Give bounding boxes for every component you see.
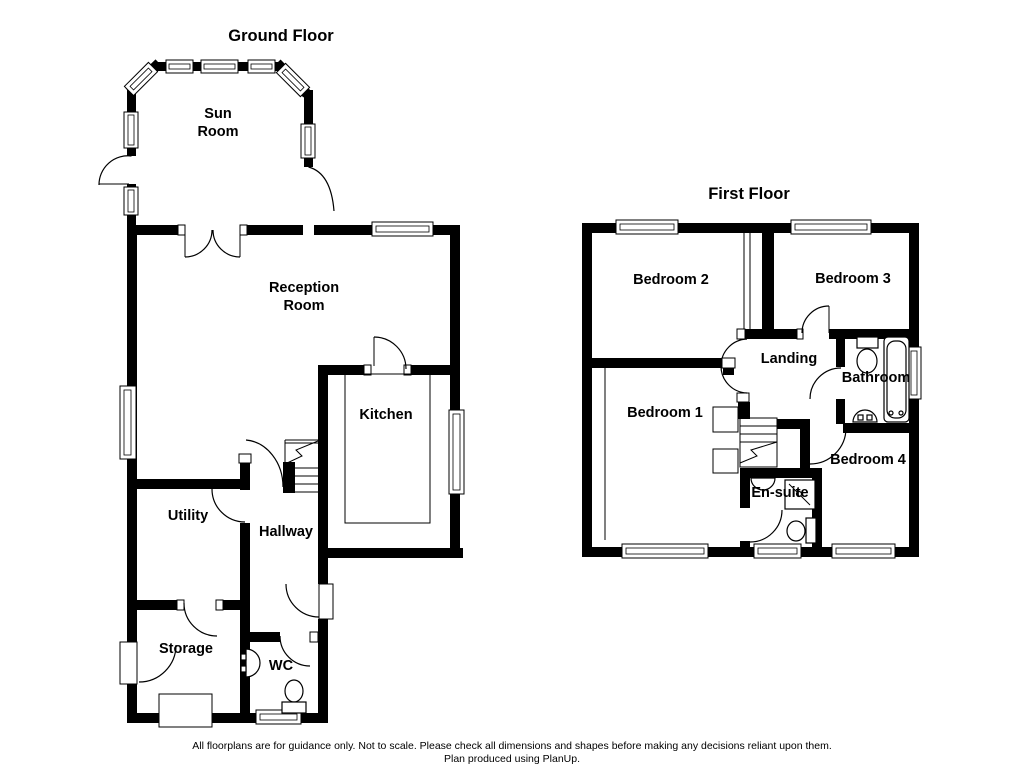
room-label-bedroom1: Bedroom 1 xyxy=(627,405,703,421)
room-label-bedroom3: Bedroom 3 xyxy=(815,271,891,287)
window xyxy=(791,220,871,234)
footer-credit: Plan produced using PlanUp. xyxy=(444,753,580,765)
window xyxy=(166,60,193,73)
window xyxy=(372,222,433,236)
sink-fixture xyxy=(853,410,877,422)
window xyxy=(248,60,275,73)
room-label-bathroom: Bathroom xyxy=(842,370,910,386)
room-label-reception-1: Reception xyxy=(269,280,339,296)
window xyxy=(124,187,138,215)
room-label-wc: WC xyxy=(269,658,294,674)
window xyxy=(449,410,464,494)
floorplan-canvas: Ground Floor Sun Room Reception Room Kit… xyxy=(0,0,1024,768)
toilet-fixture xyxy=(787,518,816,543)
window xyxy=(201,60,238,73)
room-label-bedroom4: Bedroom 4 xyxy=(830,452,906,468)
ground-door-arcs xyxy=(120,229,406,684)
room-label-hallway: Hallway xyxy=(259,524,313,540)
window xyxy=(301,124,315,158)
toilet-fixture xyxy=(857,337,878,373)
window xyxy=(124,62,157,95)
room-label-utility: Utility xyxy=(168,508,208,524)
footer-disclaimer: All floorplans are for guidance only. No… xyxy=(192,740,832,752)
window xyxy=(622,544,708,558)
front-door xyxy=(286,584,333,619)
floor-title-first: First Floor xyxy=(708,185,790,203)
room-label-reception-2: Room xyxy=(283,298,324,314)
room-label-storage: Storage xyxy=(159,641,213,657)
floorplan-page: Ground Floor Sun Room Reception Room Kit… xyxy=(0,0,1024,768)
wardrobe-furniture xyxy=(713,407,738,473)
window xyxy=(120,386,136,459)
kitchen-counter xyxy=(345,374,430,523)
toilet-fixture xyxy=(282,680,306,713)
room-label-ensuite: En-suite xyxy=(751,485,808,501)
porch-step xyxy=(159,694,212,727)
stairs-first xyxy=(740,418,777,467)
room-label-sun-room-1: Sun xyxy=(204,106,231,122)
ground-floor-plan: Ground Floor Sun Room Reception Room Kit… xyxy=(99,27,464,727)
first-floor-plan: First Floor Bedroom 2 Bedroom 3 Landing … xyxy=(582,185,921,558)
window xyxy=(754,544,801,558)
room-label-landing: Landing xyxy=(761,351,817,367)
window xyxy=(276,63,309,96)
room-label-bedroom2: Bedroom 2 xyxy=(633,272,709,288)
room-label-sun-room-2: Room xyxy=(197,124,238,140)
floor-title-ground: Ground Floor xyxy=(228,27,334,45)
window xyxy=(124,112,138,148)
window xyxy=(832,544,895,558)
window xyxy=(616,220,678,234)
sun-room-walls xyxy=(129,63,309,227)
room-label-kitchen: Kitchen xyxy=(359,407,412,423)
